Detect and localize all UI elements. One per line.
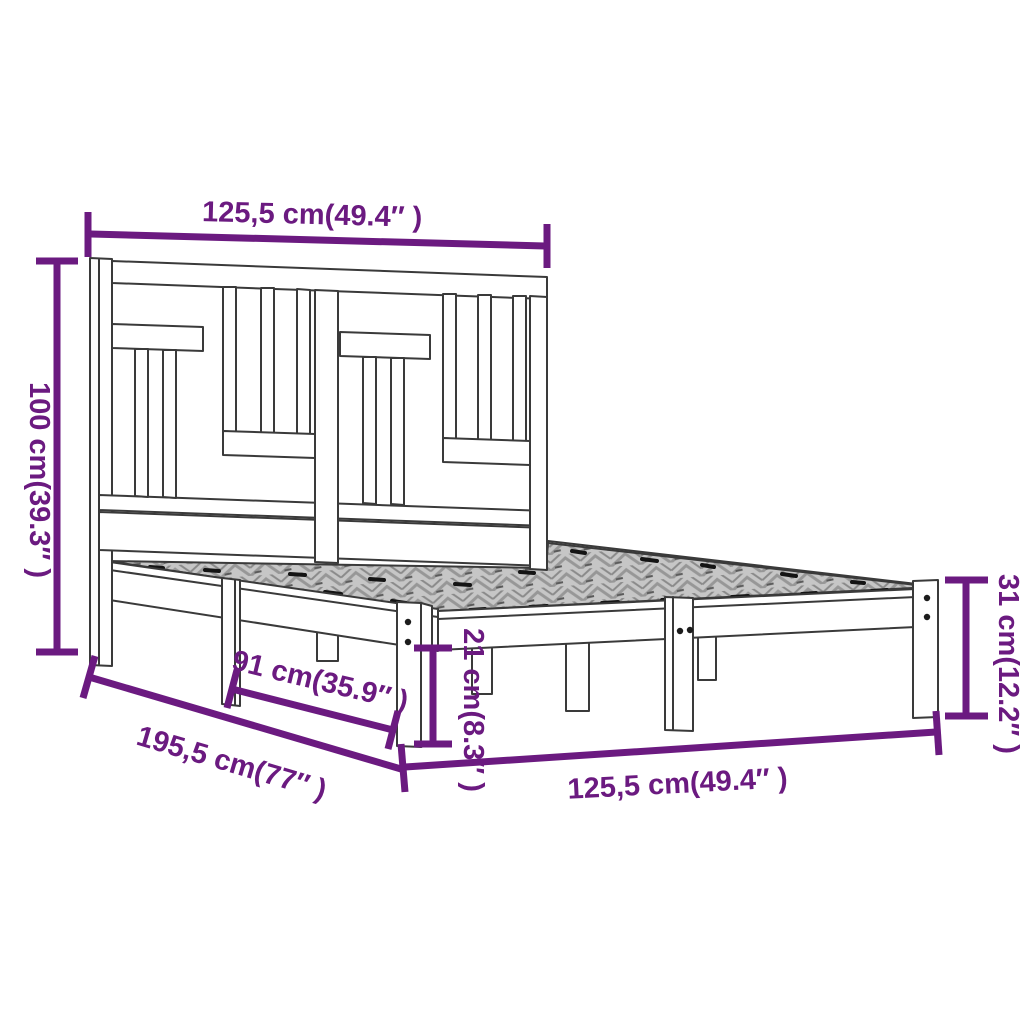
headboard-bar xyxy=(443,438,530,465)
headboard-slat xyxy=(261,288,274,434)
headboard-bar xyxy=(340,332,430,359)
dim-label-bed-width: 125,5 cm(49.4″ ) xyxy=(567,762,789,805)
bed-leg xyxy=(566,636,589,711)
dim-tick xyxy=(401,744,405,792)
headboard-slat xyxy=(391,358,404,505)
headboard-slat xyxy=(363,357,376,504)
dim-label-frame-height: 31 cm(12.2″ ) xyxy=(992,574,1024,754)
headboard-right-stile xyxy=(530,296,547,570)
headboard-slat xyxy=(135,349,148,497)
headboard-center-stile xyxy=(315,290,338,563)
headboard-right-panel xyxy=(340,294,530,505)
product-dimension-diagram: 125,5 cm(49.4″ ) 100 cm(39.3″ ) 195,5 cm… xyxy=(0,0,1024,1024)
headboard-slat xyxy=(163,350,176,498)
front-middle-leg xyxy=(665,597,693,731)
headboard-left-stile xyxy=(90,258,112,666)
headboard-slat xyxy=(297,289,310,435)
dim-label-headboard-height: 100 cm(39.3″ ) xyxy=(23,382,55,578)
dim-frame-height xyxy=(945,580,988,716)
headboard-slat xyxy=(478,295,491,440)
dim-label-bed-length: 195,5 cm(77″ ) xyxy=(133,720,330,806)
headboard-slat xyxy=(443,294,456,439)
bed-drawing xyxy=(90,258,938,747)
headboard-bar xyxy=(112,324,203,351)
headboard-left-panel xyxy=(112,287,315,498)
headboard-bar xyxy=(223,431,315,458)
dim-label-under-bed-clearance: 21 cm(8.3″ ) xyxy=(457,628,489,792)
front-right-corner-post xyxy=(913,580,938,718)
headboard-slat xyxy=(513,296,526,441)
front-left-corner-post xyxy=(397,602,432,747)
dim-tick xyxy=(936,711,939,755)
headboard-slat xyxy=(223,287,236,432)
bed-frame-dimension-drawing: 125,5 cm(49.4″ ) 100 cm(39.3″ ) 195,5 cm… xyxy=(0,0,1024,1024)
dim-label-headboard-width: 125,5 cm(49.4″ ) xyxy=(202,196,423,234)
